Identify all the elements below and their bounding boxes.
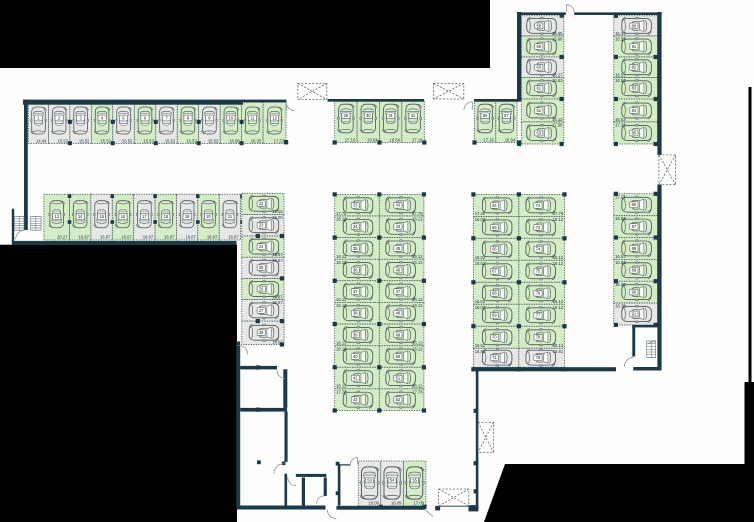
svg-text:15.81: 15.81 — [553, 349, 564, 354]
svg-text:87: 87 — [632, 224, 637, 229]
svg-text:17.58: 17.58 — [552, 123, 563, 128]
svg-text:34: 34 — [353, 224, 358, 229]
svg-text:25: 25 — [259, 265, 264, 270]
svg-text:28: 28 — [259, 330, 264, 335]
svg-text:15.52: 15.52 — [100, 139, 111, 144]
svg-text:16.12: 16.12 — [336, 341, 347, 346]
svg-text:16.12: 16.12 — [553, 343, 564, 348]
svg-text:16.12: 16.12 — [553, 299, 564, 304]
svg-text:16.12: 16.12 — [412, 260, 423, 265]
svg-text:51: 51 — [396, 376, 401, 381]
svg-text:32: 32 — [411, 113, 416, 118]
svg-text:16.02: 16.02 — [475, 261, 486, 266]
svg-text:69: 69 — [492, 313, 497, 318]
svg-text:16.67: 16.67 — [143, 234, 154, 239]
svg-text:15: 15 — [99, 214, 104, 219]
svg-text:52: 52 — [396, 397, 401, 402]
svg-text:77: 77 — [536, 313, 541, 318]
svg-text:16.67: 16.67 — [164, 234, 175, 239]
svg-text:26: 26 — [259, 286, 264, 291]
svg-text:22: 22 — [259, 201, 264, 206]
svg-text:16.67: 16.67 — [272, 294, 283, 299]
svg-text:47: 47 — [396, 289, 401, 294]
svg-text:16.12: 16.12 — [412, 346, 423, 351]
svg-text:16.67: 16.67 — [79, 234, 90, 239]
svg-text:15.52: 15.52 — [208, 139, 219, 144]
svg-text:16.66: 16.66 — [552, 37, 563, 42]
svg-text:16.12: 16.12 — [412, 303, 423, 308]
svg-text:17: 17 — [142, 214, 147, 219]
svg-text:16.27: 16.27 — [552, 72, 563, 77]
svg-text:21: 21 — [228, 214, 233, 219]
svg-text:15.52: 15.52 — [79, 139, 90, 144]
svg-text:16.02: 16.02 — [475, 305, 486, 310]
svg-text:16.53: 16.53 — [615, 260, 626, 265]
svg-text:33: 33 — [353, 203, 358, 208]
svg-text:16.67: 16.67 — [228, 234, 239, 239]
svg-text:16.02: 16.02 — [475, 255, 486, 260]
svg-text:15.52: 15.52 — [165, 139, 176, 144]
svg-text:81: 81 — [632, 44, 637, 49]
svg-text:66: 66 — [492, 247, 497, 252]
svg-text:20: 20 — [206, 214, 211, 219]
svg-text:16.67: 16.67 — [272, 252, 283, 257]
svg-text:30: 30 — [366, 113, 371, 118]
svg-text:67: 67 — [492, 269, 497, 274]
svg-text:12: 12 — [272, 115, 277, 120]
svg-text:16: 16 — [121, 214, 126, 219]
svg-text:49: 49 — [396, 332, 401, 337]
svg-text:17.16: 17.16 — [412, 138, 423, 143]
svg-text:16.02: 16.02 — [475, 343, 486, 348]
svg-text:27: 27 — [259, 308, 264, 313]
svg-text:50: 50 — [396, 354, 401, 359]
svg-text:16.12: 16.12 — [336, 254, 347, 259]
svg-text:10: 10 — [229, 115, 234, 120]
svg-text:16.09: 16.09 — [368, 500, 379, 505]
svg-text:16.53: 16.53 — [615, 78, 626, 83]
svg-text:83: 83 — [632, 86, 637, 91]
svg-text:17.16: 17.16 — [272, 209, 283, 214]
svg-text:16.12: 16.12 — [412, 254, 423, 259]
svg-text:44: 44 — [396, 224, 401, 229]
svg-text:16.53: 16.53 — [615, 216, 626, 221]
svg-text:17.78: 17.78 — [336, 390, 347, 395]
svg-text:14: 14 — [78, 214, 83, 219]
svg-text:16.35: 16.35 — [615, 31, 626, 36]
svg-text:16.12: 16.12 — [412, 297, 423, 302]
svg-text:16.67: 16.67 — [272, 258, 283, 263]
svg-text:56: 56 — [483, 113, 488, 118]
svg-text:15.52: 15.52 — [186, 139, 197, 144]
svg-text:88: 88 — [632, 246, 637, 251]
svg-text:16.02: 16.02 — [475, 299, 486, 304]
svg-text:11: 11 — [250, 115, 255, 120]
svg-text:17.78: 17.78 — [553, 211, 564, 216]
svg-text:48: 48 — [396, 311, 401, 316]
svg-text:39: 39 — [353, 332, 358, 337]
svg-text:70: 70 — [492, 335, 497, 340]
svg-text:16.53: 16.53 — [615, 117, 626, 122]
svg-text:17.16: 17.16 — [345, 138, 356, 143]
svg-text:91: 91 — [632, 311, 637, 316]
svg-text:31: 31 — [388, 113, 393, 118]
svg-text:17.37: 17.37 — [274, 139, 285, 144]
svg-text:15.52: 15.52 — [122, 139, 133, 144]
svg-text:16.12: 16.12 — [336, 303, 347, 308]
svg-text:74: 74 — [536, 247, 541, 252]
svg-text:16.12: 16.12 — [412, 217, 423, 222]
svg-text:16.35: 16.35 — [251, 139, 262, 144]
svg-text:29: 29 — [344, 113, 349, 118]
svg-text:16.53: 16.53 — [615, 72, 626, 77]
svg-text:16.67: 16.67 — [121, 234, 132, 239]
svg-text:90: 90 — [632, 290, 637, 295]
svg-text:18: 18 — [164, 214, 169, 219]
svg-text:43: 43 — [396, 203, 401, 208]
svg-text:17.78: 17.78 — [336, 211, 347, 216]
svg-text:16.67: 16.67 — [207, 234, 218, 239]
svg-text:76: 76 — [536, 291, 541, 296]
svg-text:16.12: 16.12 — [336, 297, 347, 302]
svg-text:23: 23 — [259, 223, 264, 228]
svg-text:15.52: 15.52 — [58, 139, 69, 144]
svg-text:72: 72 — [536, 203, 541, 208]
svg-text:16.12: 16.12 — [553, 305, 564, 310]
svg-text:17.09: 17.09 — [414, 500, 425, 505]
svg-text:16.12: 16.12 — [552, 117, 563, 122]
svg-text:41: 41 — [353, 376, 358, 381]
svg-text:62: 62 — [537, 108, 542, 113]
svg-text:64: 64 — [492, 203, 497, 208]
svg-text:16.53: 16.53 — [615, 37, 626, 42]
svg-text:19: 19 — [185, 214, 190, 219]
svg-text:36: 36 — [353, 267, 358, 272]
svg-text:35: 35 — [353, 246, 358, 251]
svg-text:53: 53 — [367, 477, 372, 482]
svg-text:17.78: 17.78 — [412, 390, 423, 395]
svg-text:16.12: 16.12 — [553, 255, 564, 260]
svg-text:17.30: 17.30 — [475, 211, 486, 216]
svg-text:15.81: 15.81 — [475, 349, 486, 354]
svg-text:16.54: 16.54 — [390, 138, 401, 143]
svg-text:16.67: 16.67 — [100, 234, 111, 239]
svg-text:16.12: 16.12 — [412, 384, 423, 389]
svg-text:86: 86 — [632, 202, 637, 207]
svg-text:16.12: 16.12 — [553, 261, 564, 266]
svg-text:16.53: 16.53 — [615, 254, 626, 259]
svg-text:80: 80 — [632, 23, 637, 28]
svg-text:16.12: 16.12 — [336, 260, 347, 265]
svg-text:78: 78 — [536, 335, 541, 340]
svg-text:59: 59 — [537, 44, 542, 49]
svg-text:16.54: 16.54 — [505, 138, 516, 143]
svg-text:16.67: 16.67 — [272, 300, 283, 305]
svg-text:16.12: 16.12 — [336, 346, 347, 351]
svg-text:17.16: 17.16 — [483, 138, 494, 143]
svg-text:61: 61 — [537, 86, 542, 91]
svg-text:63: 63 — [537, 130, 542, 135]
svg-text:79: 79 — [536, 355, 541, 360]
svg-text:16.54: 16.54 — [367, 138, 378, 143]
svg-text:84: 84 — [632, 108, 637, 113]
svg-text:16.12: 16.12 — [336, 384, 347, 389]
svg-text:68: 68 — [492, 291, 497, 296]
svg-text:58: 58 — [537, 23, 542, 28]
svg-text:24: 24 — [259, 244, 264, 249]
svg-text:71: 71 — [492, 355, 497, 360]
svg-text:38: 38 — [353, 311, 358, 316]
svg-text:65: 65 — [492, 225, 497, 230]
svg-text:16.09: 16.09 — [391, 500, 402, 505]
svg-text:60: 60 — [537, 65, 542, 70]
svg-text:57: 57 — [504, 113, 509, 118]
svg-text:54: 54 — [390, 477, 395, 482]
svg-text:37: 37 — [353, 289, 358, 294]
svg-text:16.67: 16.67 — [185, 234, 196, 239]
svg-text:40: 40 — [353, 354, 358, 359]
svg-text:75: 75 — [536, 269, 541, 274]
svg-text:17.37: 17.37 — [615, 123, 626, 128]
svg-text:13: 13 — [54, 214, 59, 219]
svg-text:16.06: 16.06 — [229, 139, 240, 144]
svg-text:42: 42 — [353, 397, 358, 402]
svg-text:89: 89 — [632, 268, 637, 273]
svg-text:16.53: 16.53 — [552, 78, 563, 83]
svg-text:20.27: 20.27 — [57, 234, 68, 239]
svg-text:82: 82 — [632, 65, 637, 70]
svg-text:16.12: 16.12 — [336, 217, 347, 222]
svg-text:16.02: 16.02 — [475, 217, 486, 222]
svg-text:73: 73 — [536, 225, 541, 230]
svg-text:16.12: 16.12 — [553, 217, 564, 222]
svg-text:46: 46 — [396, 267, 401, 272]
svg-text:17.78: 17.78 — [412, 211, 423, 216]
svg-text:14.04: 14.04 — [36, 139, 47, 144]
svg-text:16.12: 16.12 — [412, 341, 423, 346]
svg-text:16.76: 16.76 — [615, 304, 626, 309]
svg-text:55: 55 — [412, 477, 417, 482]
svg-text:85: 85 — [632, 130, 637, 135]
svg-text:15.52: 15.52 — [143, 139, 154, 144]
svg-text:16.00: 16.00 — [272, 215, 283, 220]
svg-text:16.65: 16.65 — [552, 31, 563, 36]
svg-text:45: 45 — [396, 246, 401, 251]
